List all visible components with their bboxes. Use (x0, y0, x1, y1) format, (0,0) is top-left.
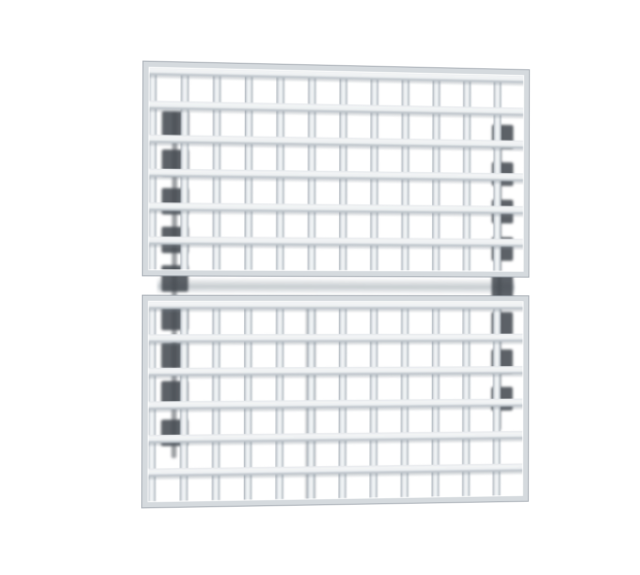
panel-seam-gap (157, 275, 515, 296)
wire-grid-photo (142, 62, 529, 508)
photo-canvas (0, 0, 640, 575)
shadow-patch (492, 275, 513, 299)
bottom-grid-panel (142, 296, 528, 508)
top-grid-panel (143, 62, 529, 277)
